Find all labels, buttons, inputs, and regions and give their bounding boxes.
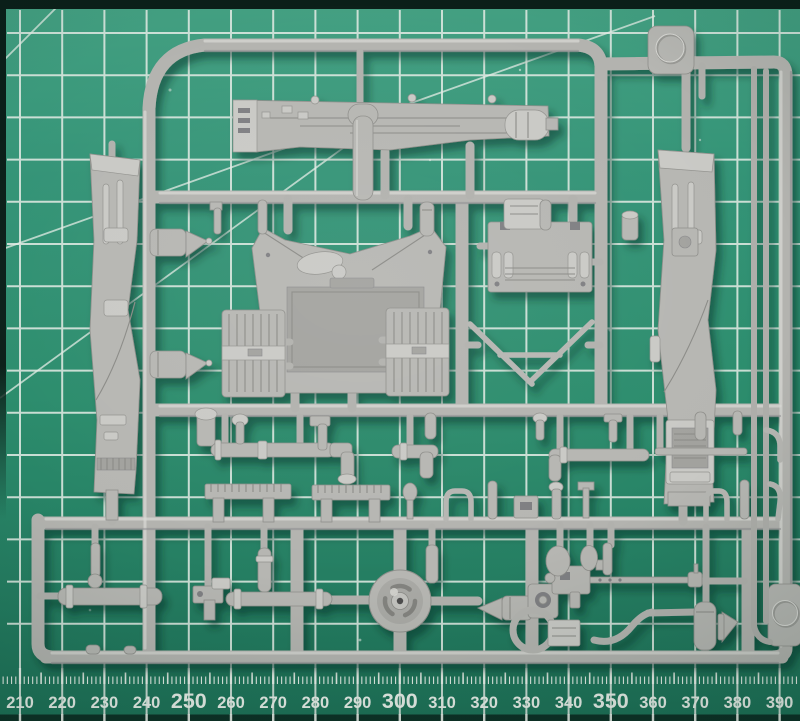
ruler-label: 240 bbox=[133, 694, 161, 712]
part-periscope bbox=[195, 408, 217, 446]
part-ammo-box bbox=[548, 620, 580, 646]
mat-top-border bbox=[0, 0, 800, 9]
part-axle-rod bbox=[226, 589, 332, 609]
ruler-label: 280 bbox=[302, 694, 330, 712]
ruler-label: 230 bbox=[91, 694, 119, 712]
ruler-label: 350 bbox=[593, 689, 629, 713]
ruler-label: 370 bbox=[681, 694, 709, 712]
part-left-door bbox=[222, 310, 285, 397]
part-left-fender bbox=[90, 154, 140, 520]
ruler-label: 320 bbox=[470, 694, 498, 712]
mat-left-border bbox=[0, 9, 6, 519]
part-thin-rod-mid bbox=[655, 448, 747, 455]
part-road-wheel bbox=[369, 570, 431, 632]
ruler-label: 390 bbox=[766, 694, 794, 712]
photo-sprue-on-cutting-mat: 2102202302402502602702802903003103203303… bbox=[0, 0, 800, 721]
id-tab-right-edge bbox=[768, 584, 800, 646]
ruler-label: 340 bbox=[555, 694, 583, 712]
id-tab-top-right bbox=[648, 26, 694, 74]
ruler-label: 250 bbox=[171, 689, 207, 713]
ruler-label: 360 bbox=[639, 694, 667, 712]
ruler-label: 380 bbox=[724, 694, 752, 712]
part-right-door bbox=[386, 308, 449, 396]
ruler-label: 270 bbox=[259, 694, 287, 712]
ruler-label: 260 bbox=[217, 694, 245, 712]
ruler-label: 210 bbox=[6, 694, 34, 712]
ruler-label: 290 bbox=[344, 694, 372, 712]
ruler-label: 300 bbox=[382, 689, 418, 713]
ruler-label: 330 bbox=[513, 694, 541, 712]
ruler-label: 220 bbox=[48, 694, 76, 712]
ruler-label: 310 bbox=[428, 694, 456, 712]
